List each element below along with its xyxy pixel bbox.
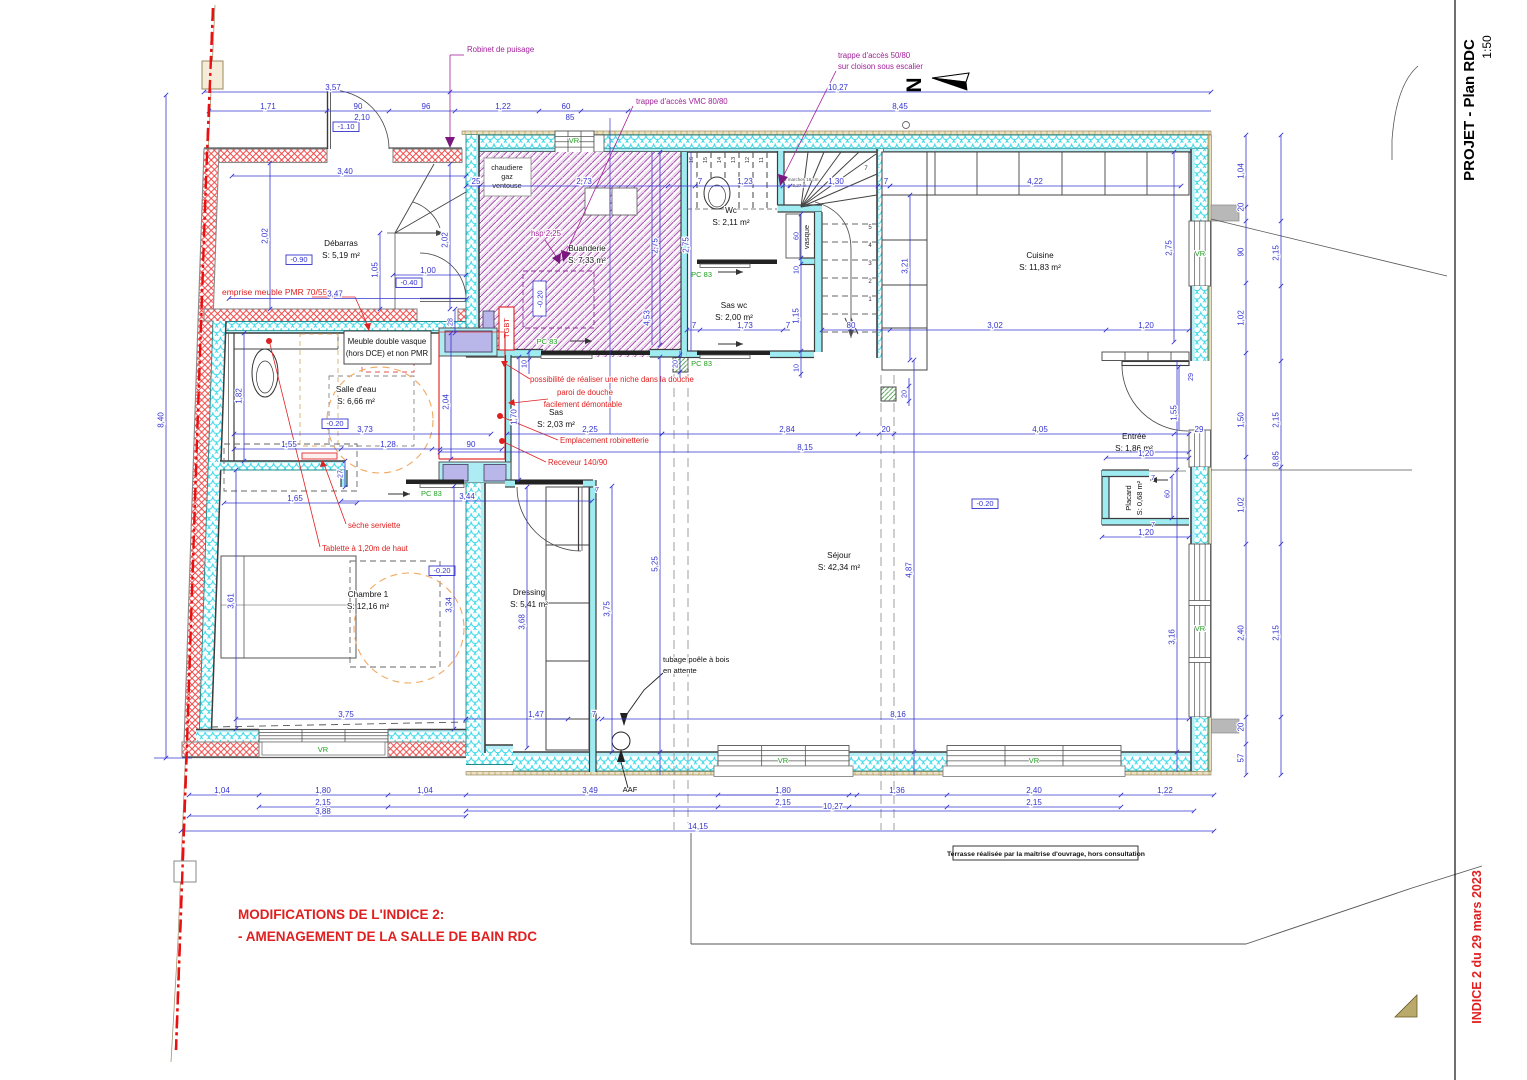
svg-text:28: 28 bbox=[445, 318, 454, 326]
svg-text:14: 14 bbox=[717, 157, 723, 163]
svg-text:7: 7 bbox=[592, 710, 597, 719]
svg-text:Sas wc: Sas wc bbox=[721, 301, 747, 310]
svg-text:10,27: 10,27 bbox=[828, 83, 849, 92]
svg-text:1,70: 1,70 bbox=[509, 409, 518, 425]
svg-text:13: 13 bbox=[731, 157, 737, 163]
svg-text:Terrasse réalisée par la maîtr: Terrasse réalisée par la maîtrise d'ouvr… bbox=[947, 851, 1145, 858]
svg-text:2,02: 2,02 bbox=[440, 232, 449, 248]
svg-text:S: 6,66 m²: S: 6,66 m² bbox=[337, 397, 375, 406]
svg-text:3,75: 3,75 bbox=[338, 710, 354, 719]
svg-text:PC 83: PC 83 bbox=[421, 489, 442, 498]
svg-text:10: 10 bbox=[791, 266, 800, 274]
svg-text:possibilité de réaliser une ni: possibilité de réaliser une niche dans l… bbox=[530, 375, 694, 384]
svg-text:3,88: 3,88 bbox=[315, 807, 331, 816]
svg-text:60: 60 bbox=[791, 232, 800, 240]
svg-text:Salle d'eau: Salle d'eau bbox=[336, 385, 377, 394]
svg-text:2,84: 2,84 bbox=[779, 425, 795, 434]
svg-text:S: 2,03 m²: S: 2,03 m² bbox=[537, 420, 575, 429]
svg-text:N: N bbox=[903, 77, 926, 92]
svg-text:3,57: 3,57 bbox=[325, 83, 341, 92]
svg-text:PC 83: PC 83 bbox=[691, 270, 712, 279]
svg-text:AAF: AAF bbox=[623, 785, 638, 794]
svg-text:-0.20: -0.20 bbox=[536, 290, 545, 307]
svg-text:2,75: 2,75 bbox=[1164, 240, 1173, 256]
svg-text:4,53: 4,53 bbox=[642, 310, 651, 326]
svg-text:3,49: 3,49 bbox=[582, 786, 598, 795]
svg-text:2,40: 2,40 bbox=[1026, 786, 1042, 795]
svg-text:Buanderie: Buanderie bbox=[568, 244, 606, 253]
svg-text:VR: VR bbox=[1195, 624, 1206, 633]
svg-text:-0.20: -0.20 bbox=[433, 566, 450, 575]
svg-text:INDICE 2 du 29 mars 2023: INDICE 2 du 29 mars 2023 bbox=[1470, 870, 1484, 1024]
svg-text:3,40: 3,40 bbox=[337, 167, 353, 176]
svg-text:7: 7 bbox=[692, 321, 697, 330]
svg-text:1,00: 1,00 bbox=[420, 266, 436, 275]
svg-text:3,47: 3,47 bbox=[327, 289, 343, 298]
svg-text:S: 0,68 m²: S: 0,68 m² bbox=[1135, 480, 1144, 515]
svg-text:1,30: 1,30 bbox=[828, 177, 844, 186]
svg-text:Wc: Wc bbox=[725, 206, 737, 215]
svg-text:5,25: 5,25 bbox=[650, 556, 659, 572]
svg-text:1,50: 1,50 bbox=[1236, 412, 1245, 428]
svg-text:1,20: 1,20 bbox=[1138, 321, 1154, 330]
svg-text:hsp 2,25: hsp 2,25 bbox=[531, 229, 562, 238]
svg-text:3,73: 3,73 bbox=[357, 425, 373, 434]
svg-text:Receveur 140/90: Receveur 140/90 bbox=[548, 458, 608, 467]
svg-text:-1.10: -1.10 bbox=[337, 122, 354, 131]
svg-text:VR: VR bbox=[569, 136, 580, 145]
svg-text:Placard: Placard bbox=[1124, 485, 1133, 510]
svg-text:trappe d'accès 50/80: trappe d'accès 50/80 bbox=[838, 51, 911, 60]
svg-text:7: 7 bbox=[595, 485, 599, 494]
svg-text:2,15: 2,15 bbox=[1271, 412, 1280, 428]
svg-text:Meuble double vasque: Meuble double vasque bbox=[348, 337, 426, 346]
svg-text:-0.20: -0.20 bbox=[326, 419, 343, 428]
svg-text:4,87: 4,87 bbox=[904, 562, 913, 578]
svg-text:2,04: 2,04 bbox=[441, 394, 450, 410]
svg-text:sèche serviette: sèche serviette bbox=[348, 521, 400, 530]
svg-text:S: 2,11 m²: S: 2,11 m² bbox=[712, 218, 749, 227]
svg-text:1,55: 1,55 bbox=[281, 440, 297, 449]
svg-text:3,16: 3,16 bbox=[1167, 629, 1176, 645]
svg-text:2,75: 2,75 bbox=[681, 237, 690, 253]
svg-text:11: 11 bbox=[759, 157, 765, 163]
svg-text:TGBT: TGBT bbox=[502, 318, 511, 338]
svg-text:2,15: 2,15 bbox=[775, 798, 791, 807]
svg-text:3,61: 3,61 bbox=[226, 593, 235, 609]
svg-text:chaudiere: chaudiere bbox=[491, 163, 523, 172]
svg-text:2,73: 2,73 bbox=[576, 177, 592, 186]
svg-text:90: 90 bbox=[354, 102, 363, 111]
svg-text:8,16: 8,16 bbox=[890, 710, 906, 719]
svg-text:- AMENAGEMENT DE LA SALLE DE B: - AMENAGEMENT DE LA SALLE DE BAIN RDC bbox=[238, 929, 537, 944]
svg-text:20: 20 bbox=[1236, 722, 1245, 731]
svg-text:7: 7 bbox=[698, 177, 703, 186]
svg-text:20: 20 bbox=[882, 425, 891, 434]
svg-text:Cuisine: Cuisine bbox=[1026, 251, 1054, 260]
svg-text:en attente: en attente bbox=[663, 666, 697, 675]
svg-text:Robinet de puisage: Robinet de puisage bbox=[467, 45, 534, 54]
svg-text:2,15: 2,15 bbox=[1026, 798, 1042, 807]
svg-text:VR: VR bbox=[1195, 249, 1206, 258]
svg-text:S: 12,16 m²: S: 12,16 m² bbox=[347, 602, 390, 611]
svg-text:PC 83: PC 83 bbox=[537, 337, 558, 346]
svg-text:1,05: 1,05 bbox=[370, 262, 379, 278]
svg-text:20: 20 bbox=[670, 360, 679, 368]
svg-text:29: 29 bbox=[1186, 373, 1195, 381]
svg-text:8,15: 8,15 bbox=[797, 443, 813, 452]
svg-text:1,04: 1,04 bbox=[1236, 163, 1245, 179]
svg-text:(hors DCE) et non PMR: (hors DCE) et non PMR bbox=[346, 349, 429, 358]
svg-text:1,22: 1,22 bbox=[1157, 786, 1173, 795]
svg-text:3,44: 3,44 bbox=[459, 492, 475, 501]
svg-text:S: 5,41 m²: S: 5,41 m² bbox=[510, 600, 548, 609]
svg-text:3,34: 3,34 bbox=[444, 597, 453, 613]
svg-text:paroi de douche: paroi de douche bbox=[557, 388, 613, 397]
svg-text:20: 20 bbox=[899, 390, 908, 398]
svg-text:14,15: 14,15 bbox=[688, 822, 709, 831]
svg-text:8,45: 8,45 bbox=[892, 102, 908, 111]
svg-text:3,75: 3,75 bbox=[602, 601, 611, 617]
svg-text:10: 10 bbox=[791, 364, 800, 372]
svg-text:1,28: 1,28 bbox=[380, 440, 396, 449]
svg-text:29: 29 bbox=[1195, 425, 1204, 434]
svg-text:1,04: 1,04 bbox=[417, 786, 433, 795]
svg-text:1,20: 1,20 bbox=[1138, 449, 1154, 458]
svg-text:12: 12 bbox=[745, 157, 751, 163]
svg-text:Emplacement robinetterie: Emplacement robinetterie bbox=[560, 436, 649, 445]
svg-text:vasque: vasque bbox=[802, 225, 811, 249]
svg-text:1,02: 1,02 bbox=[1236, 310, 1245, 326]
svg-text:emprise meuble PMR 70/55: emprise meuble PMR 70/55 bbox=[222, 287, 328, 297]
svg-text:4,05: 4,05 bbox=[1032, 425, 1048, 434]
svg-text:1,73: 1,73 bbox=[737, 321, 753, 330]
svg-text:15: 15 bbox=[703, 157, 709, 163]
svg-text:27: 27 bbox=[335, 470, 344, 478]
svg-text:7: 7 bbox=[1151, 473, 1155, 482]
svg-text:-0.40: -0.40 bbox=[400, 278, 417, 287]
svg-text:1,36: 1,36 bbox=[889, 786, 905, 795]
svg-text:1,47: 1,47 bbox=[528, 710, 544, 719]
svg-text:PROJET - Plan RDC: PROJET - Plan RDC bbox=[1461, 39, 1478, 181]
svg-text:Chambre 1: Chambre 1 bbox=[348, 590, 389, 599]
svg-text:tubage poêle à bois: tubage poêle à bois bbox=[663, 655, 729, 664]
svg-text:1,23: 1,23 bbox=[737, 177, 753, 186]
svg-text:3,21: 3,21 bbox=[900, 258, 909, 274]
svg-text:2,15: 2,15 bbox=[1271, 625, 1280, 641]
svg-text:1,80: 1,80 bbox=[775, 786, 791, 795]
svg-text:-0.90: -0.90 bbox=[290, 255, 307, 264]
svg-text:1,65: 1,65 bbox=[287, 494, 303, 503]
svg-text:S: 5,19 m²: S: 5,19 m² bbox=[322, 251, 360, 260]
svg-text:3,68: 3,68 bbox=[517, 614, 526, 630]
svg-text:7: 7 bbox=[1151, 520, 1155, 529]
svg-text:Débarras: Débarras bbox=[324, 239, 358, 248]
svg-text:1,71: 1,71 bbox=[260, 102, 276, 111]
svg-text:10: 10 bbox=[519, 360, 528, 368]
svg-text:Séjour: Séjour bbox=[827, 551, 851, 560]
svg-text:Tablette à 1,20m de haut: Tablette à 1,20m de haut bbox=[322, 544, 409, 553]
svg-text:2,15: 2,15 bbox=[315, 798, 331, 807]
svg-text:1,20: 1,20 bbox=[1138, 528, 1154, 537]
svg-text:60: 60 bbox=[1162, 490, 1171, 498]
svg-text:60: 60 bbox=[562, 102, 571, 111]
svg-text:VR: VR bbox=[318, 745, 329, 754]
svg-text:Dressing: Dressing bbox=[513, 588, 546, 597]
svg-text:1,82: 1,82 bbox=[234, 388, 243, 404]
svg-text:2,15: 2,15 bbox=[1271, 245, 1280, 261]
svg-text:1,22: 1,22 bbox=[495, 102, 511, 111]
svg-text:2,25: 2,25 bbox=[582, 425, 598, 434]
svg-text:10,27: 10,27 bbox=[823, 802, 844, 811]
svg-text:90: 90 bbox=[467, 440, 476, 449]
svg-text:gaz: gaz bbox=[501, 172, 513, 181]
svg-text:96: 96 bbox=[422, 102, 431, 111]
svg-text:S: 11,83 m²: S: 11,83 m² bbox=[1019, 263, 1061, 272]
svg-text:20: 20 bbox=[1236, 202, 1245, 211]
svg-text:facilement démontable: facilement démontable bbox=[544, 400, 622, 409]
svg-text:3,02: 3,02 bbox=[987, 321, 1003, 330]
svg-text:1,04: 1,04 bbox=[214, 786, 230, 795]
svg-text:80: 80 bbox=[847, 321, 856, 330]
svg-text:85: 85 bbox=[566, 113, 575, 122]
svg-text:16: 16 bbox=[689, 157, 695, 163]
svg-text:8,85: 8,85 bbox=[1271, 451, 1280, 467]
svg-text:90: 90 bbox=[1236, 247, 1245, 256]
svg-text:S: 42,34 m²: S: 42,34 m² bbox=[818, 563, 861, 572]
svg-text:57: 57 bbox=[1236, 753, 1245, 762]
svg-text:25: 25 bbox=[472, 177, 481, 186]
svg-text:-0.20: -0.20 bbox=[976, 499, 993, 508]
svg-text:sur cloison sous escalier: sur cloison sous escalier bbox=[838, 62, 923, 71]
svg-text:VR: VR bbox=[1029, 756, 1040, 765]
svg-text:4,22: 4,22 bbox=[1027, 177, 1043, 186]
svg-text:1:50: 1:50 bbox=[1480, 35, 1494, 59]
svg-text:MODIFICATIONS DE L'INDICE 2:: MODIFICATIONS DE L'INDICE 2: bbox=[238, 907, 444, 922]
svg-text:ventouse: ventouse bbox=[492, 181, 521, 190]
svg-text:2,02: 2,02 bbox=[260, 228, 269, 244]
svg-text:8,40: 8,40 bbox=[156, 412, 165, 428]
svg-text:VR: VR bbox=[778, 756, 789, 765]
svg-text:Entrée: Entrée bbox=[1122, 432, 1147, 441]
svg-text:7: 7 bbox=[786, 321, 791, 330]
svg-text:1,55: 1,55 bbox=[1169, 405, 1178, 421]
svg-text:7: 7 bbox=[884, 177, 889, 186]
svg-text:Sas: Sas bbox=[549, 408, 563, 417]
svg-text:PC 83: PC 83 bbox=[691, 359, 712, 368]
svg-text:1,80: 1,80 bbox=[315, 786, 331, 795]
svg-text:2,10: 2,10 bbox=[354, 113, 370, 122]
svg-text:trappe d'accès VMC 80/80: trappe d'accès VMC 80/80 bbox=[636, 97, 728, 106]
svg-text:S: 7,33 m²: S: 7,33 m² bbox=[568, 256, 606, 265]
svg-text:1,15: 1,15 bbox=[791, 308, 800, 324]
svg-text:1,02: 1,02 bbox=[1236, 497, 1245, 513]
svg-text:2,40: 2,40 bbox=[1236, 625, 1245, 641]
